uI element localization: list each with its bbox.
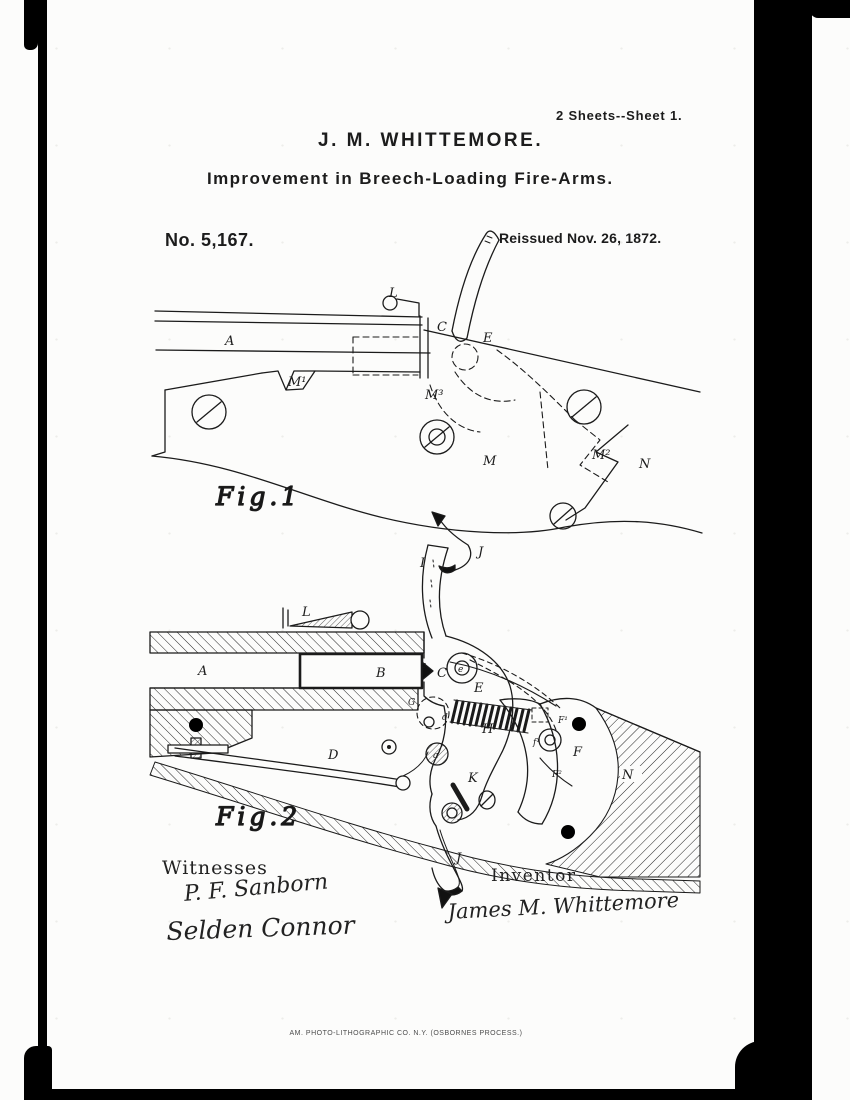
fig1-label-E: E (482, 331, 493, 346)
fig1-label-N: N (638, 457, 651, 472)
fig2-label-F: F (572, 745, 583, 760)
fig2-label-K: K (467, 771, 479, 786)
fig1-label-M3: M³ (424, 388, 444, 403)
fig2-label-G: G (408, 698, 415, 708)
fig1-label-M2: M² (591, 448, 611, 463)
fig2-label-F2: F² (551, 770, 562, 780)
lithographer-line: AM. PHOTO-LITHOGRAPHIC CO. N.Y. (OSBORNE… (231, 1030, 581, 1037)
fig2-caption: Fig.2 (215, 802, 301, 831)
fig1-label-C: C (437, 320, 447, 335)
fig2-label-B: B (375, 666, 386, 681)
fig2-label-a: a (433, 751, 438, 761)
fig2-label-C: C (437, 666, 447, 681)
patent-drawings: Fig.1 L A C E M¹ M³ M M² N J (0, 0, 850, 1100)
fig2-label-L: L (301, 605, 311, 620)
fig1-label-M: M (482, 454, 497, 469)
fig1-caption: Fig.1 (215, 482, 301, 511)
fig2-label-e: e (458, 665, 463, 675)
figure-2: Fig.2 I L A B c C G d e E H F¹ f¹ F F² K… (150, 545, 700, 908)
fig2-label-I: I (419, 556, 426, 571)
fig1-label-L: L (388, 286, 398, 301)
inventor-heading-script: Inventor (491, 866, 576, 886)
figure-1: Fig.1 L A C E M¹ M³ M M² N J (152, 231, 702, 573)
fig2-label-f1: f¹ (532, 738, 540, 748)
fig1-label-J: J (475, 545, 484, 560)
fig2-label-d: d (442, 713, 448, 723)
fig2-label-D: D (327, 748, 339, 763)
fig2-label-H: H (481, 722, 494, 737)
fig2-label-F1: F¹ (557, 716, 568, 726)
fig2-label-A: A (197, 664, 207, 679)
patent-sheet: 2 Sheets--Sheet 1. J. M. WHITTEMORE. Imp… (0, 0, 850, 1100)
fig1-label-M1: M¹ (287, 375, 307, 390)
fig2-label-N: N (621, 768, 634, 783)
fig2-label-c: c (421, 661, 426, 671)
fig2-label-E: E (473, 681, 484, 696)
fig1-label-A: A (224, 334, 234, 349)
